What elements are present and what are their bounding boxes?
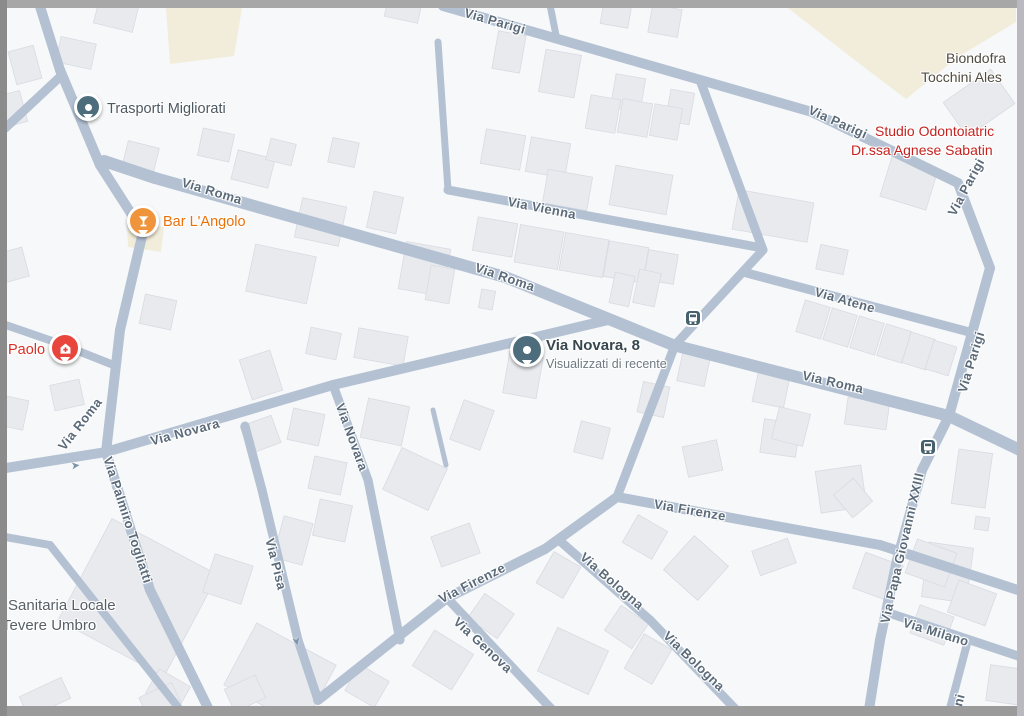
paolo-pin[interactable] — [49, 332, 81, 364]
via-novara-8-pin[interactable] — [510, 333, 544, 367]
bar-langolo-pin[interactable] — [127, 205, 159, 237]
marker-layer — [0, 0, 1024, 716]
cocktail-icon — [136, 214, 151, 229]
trasporti-migliorati-pin[interactable] — [74, 93, 102, 121]
health-house-icon — [58, 341, 73, 356]
place-dot-icon — [523, 346, 531, 354]
map-canvas[interactable]: ➤➤ Via ParigiVia ParigiVia ParigiVia Par… — [0, 0, 1024, 716]
place-dot-icon — [85, 104, 92, 111]
